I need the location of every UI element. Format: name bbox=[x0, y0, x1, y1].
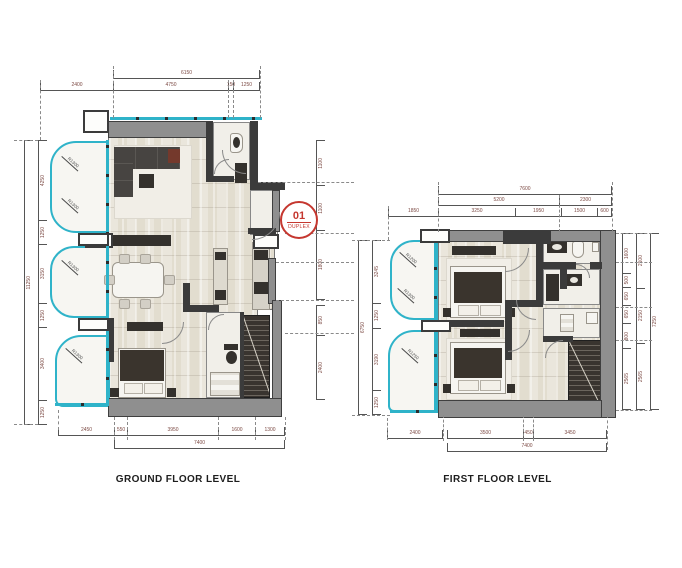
dim-segment: 1600 bbox=[622, 233, 631, 273]
washer bbox=[560, 314, 574, 332]
wall bbox=[438, 400, 602, 418]
wall bbox=[560, 269, 567, 289]
first-floor-plan: R1200 R1300 R1250 bbox=[0, 0, 682, 568]
dashed-reference-line bbox=[523, 415, 524, 441]
dashed-reference-line bbox=[616, 307, 652, 308]
dim-segment: 3245 bbox=[372, 240, 381, 303]
wardrobe bbox=[460, 329, 500, 337]
dashed-reference-line bbox=[607, 415, 608, 450]
dim-segment: 6750 bbox=[358, 240, 367, 415]
sink-icon bbox=[552, 244, 562, 250]
dashed-reference-line bbox=[616, 340, 652, 341]
dim-label: 800 bbox=[624, 332, 630, 340]
dim-label: 3450 bbox=[533, 430, 607, 439]
dim-label: 5200 bbox=[438, 197, 559, 206]
wall bbox=[536, 240, 543, 264]
shower bbox=[586, 312, 598, 324]
dashed-reference-line bbox=[352, 240, 390, 241]
dim-label: 2400 bbox=[387, 430, 443, 439]
toilet-icon bbox=[572, 241, 584, 258]
dashed-reference-line bbox=[616, 410, 652, 411]
dashed-reference-line bbox=[443, 415, 444, 441]
dashed-reference-line bbox=[559, 195, 560, 232]
nightstand bbox=[443, 308, 451, 317]
dim-label: 2100 bbox=[638, 255, 644, 266]
dashed-reference-line bbox=[533, 415, 534, 441]
dim-label: 7600 bbox=[438, 186, 612, 195]
dim-label: 7400 bbox=[447, 443, 607, 452]
dim-label: 650 bbox=[624, 292, 630, 300]
dim-segment: 3190 bbox=[372, 328, 381, 390]
dim-label: 2565 bbox=[624, 373, 630, 384]
first-floor-title: FIRST FLOOR LEVEL bbox=[430, 474, 565, 485]
wall bbox=[600, 230, 616, 418]
dim-chain-top-row2: 5200 2300 bbox=[438, 197, 612, 206]
vanity-unit bbox=[546, 274, 559, 301]
nightstand bbox=[443, 384, 451, 393]
dashed-reference-line bbox=[616, 262, 652, 263]
bed-duvet bbox=[454, 272, 502, 303]
nightstand bbox=[507, 384, 515, 393]
bed-duvet bbox=[454, 348, 502, 378]
dim-chain-left: 3245 1250 3190 1250 bbox=[372, 240, 381, 415]
dim-chain-bottom-total: 7400 bbox=[447, 443, 607, 452]
dim-label: 1250 bbox=[374, 397, 380, 408]
dim-chain-right-total: 7250 bbox=[650, 233, 659, 410]
dim-chain-top-row3: 1850 3250 1950 1500 600 bbox=[388, 208, 612, 217]
dim-label: 3250 bbox=[438, 208, 515, 217]
dim-chain-left-total: 6750 bbox=[358, 240, 367, 415]
wall bbox=[590, 262, 602, 269]
dashed-reference-line bbox=[387, 418, 388, 440]
bed bbox=[450, 342, 506, 394]
planter-box bbox=[420, 229, 450, 243]
dim-label: 1600 bbox=[624, 248, 630, 259]
first-balcony-2 bbox=[388, 330, 438, 412]
bed bbox=[450, 266, 506, 318]
dim-segment: 650 bbox=[622, 287, 631, 305]
bed-pillow bbox=[480, 380, 501, 391]
wall bbox=[536, 262, 576, 269]
dim-label: 7250 bbox=[652, 316, 658, 327]
dim-label: 500 bbox=[624, 276, 630, 284]
dim-segment: 7250 bbox=[650, 233, 659, 410]
dim-label: 450 bbox=[523, 430, 533, 439]
dim-segment: 800 bbox=[622, 323, 631, 348]
dim-label: 2150 bbox=[638, 310, 644, 321]
dim-label: 3245 bbox=[374, 266, 380, 277]
radiator bbox=[592, 242, 599, 252]
dim-chain-bottom: 3500 450 3450 bbox=[447, 430, 607, 439]
first-balcony-1 bbox=[390, 240, 438, 320]
dim-segment: 2565 bbox=[636, 343, 645, 410]
dim-chain-right-mid: 2100 2150 2565 bbox=[636, 233, 645, 410]
dim-label: 600 bbox=[597, 208, 612, 217]
dim-chain-top-total: 7600 bbox=[438, 186, 612, 195]
dim-chain-bottom-left: 2400 bbox=[387, 430, 443, 439]
dashed-reference-line bbox=[616, 233, 652, 234]
dim-segment: 2150 bbox=[636, 288, 645, 343]
dashed-reference-line bbox=[352, 415, 390, 416]
dim-segment: 2100 bbox=[636, 233, 645, 288]
wall bbox=[503, 230, 551, 244]
dim-segment: 2565 bbox=[622, 348, 631, 410]
dim-segment: 500 bbox=[622, 273, 631, 287]
dim-label: 2565 bbox=[638, 371, 644, 382]
dashed-reference-line bbox=[438, 182, 439, 232]
dim-chain-right-inner: 1600 500 650 650 800 2565 bbox=[622, 233, 631, 410]
dim-label: 650 bbox=[624, 310, 630, 318]
bed-pillow bbox=[458, 380, 479, 391]
dim-label: 1850 bbox=[388, 208, 438, 217]
drawing-canvas: R1300 R1300 R1300 R1300 bbox=[0, 0, 682, 568]
bed-pillow bbox=[458, 305, 479, 316]
dim-label: 1950 bbox=[515, 208, 561, 217]
dim-label: 3190 bbox=[374, 354, 380, 365]
dim-label: 3500 bbox=[447, 430, 523, 439]
dim-label: 2300 bbox=[559, 197, 612, 206]
dim-label: 6750 bbox=[360, 322, 366, 333]
bed-pillow bbox=[480, 305, 501, 316]
balcony-glazing-line bbox=[390, 410, 438, 413]
dim-label: 1500 bbox=[561, 208, 597, 217]
dim-label: 1250 bbox=[374, 310, 380, 321]
dashed-reference-line bbox=[612, 182, 613, 232]
window-sill-box bbox=[421, 320, 451, 332]
wardrobe bbox=[452, 246, 496, 255]
dim-segment: 1250 bbox=[372, 303, 381, 328]
dim-segment: 1250 bbox=[372, 390, 381, 415]
dashed-reference-line bbox=[388, 206, 389, 240]
